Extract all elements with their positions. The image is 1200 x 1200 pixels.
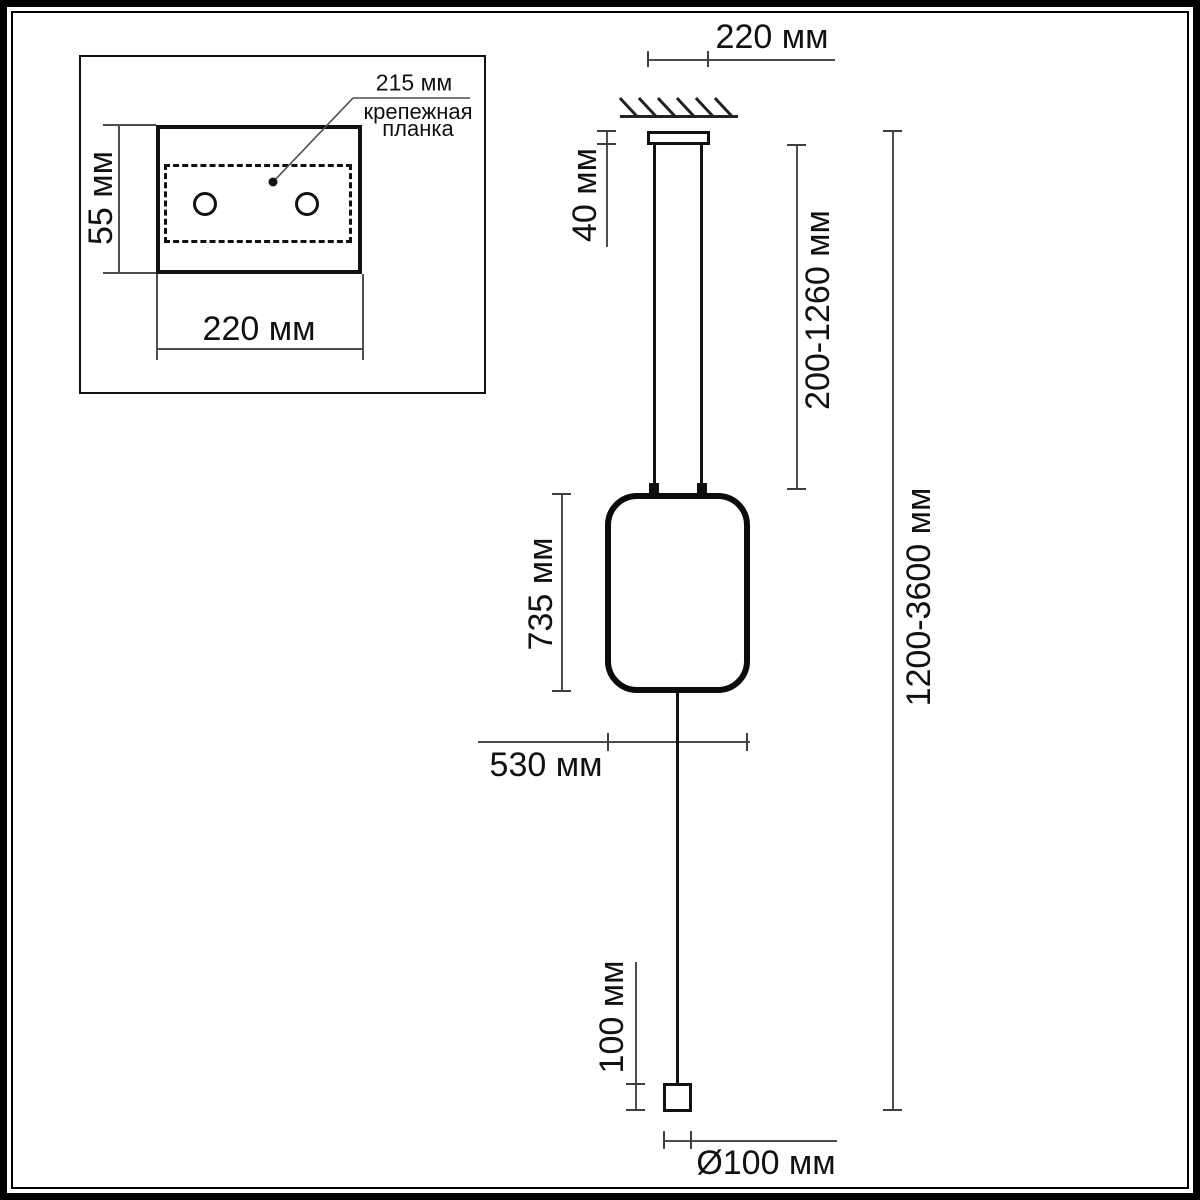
shade-height-tick-bottom <box>552 690 571 692</box>
suspension-range-tick-bottom <box>787 488 806 490</box>
total-height-label: 1200-3600 мм <box>902 488 936 707</box>
anchor-height-label: 100 мм <box>595 961 629 1074</box>
shade-height-dim-line <box>561 494 563 691</box>
shade-width-tick-left <box>607 733 609 751</box>
suspension-wire-left <box>653 145 656 486</box>
suspension-range-label: 200-1260 мм <box>801 210 835 410</box>
shade-width-tick-right <box>746 733 748 751</box>
ceiling-canopy <box>647 131 710 145</box>
anchor-height-tick-top <box>626 1083 645 1085</box>
lower-cable <box>676 693 679 1084</box>
canopy-width-tick-left <box>647 51 649 67</box>
plate-height-ext-top <box>103 124 156 126</box>
floor-anchor <box>663 1083 692 1112</box>
plate-height-ext-bottom <box>103 272 156 274</box>
anchor-diameter-tick-left <box>663 1131 665 1149</box>
mounting-plate-detail-box: 215 мм крепежная планка 55 мм 220 мм <box>79 55 486 394</box>
anchor-diameter-tick-right <box>690 1131 692 1149</box>
canopy-width-label: 220 мм <box>716 20 829 54</box>
shade-height-label: 735 мм <box>524 538 558 651</box>
total-height-tick-top <box>883 130 902 132</box>
suspension-range-dim-line <box>796 145 798 490</box>
shade-width-label: 530 мм <box>490 748 603 782</box>
bracket-length-label: 215 мм <box>376 75 452 92</box>
anchor-height-dim-line <box>635 962 637 1111</box>
canopy-width-dim-line <box>648 59 835 61</box>
anchor-diameter-label: Ø100 мм <box>696 1146 835 1180</box>
canopy-height-label: 40 мм <box>568 148 602 242</box>
canopy-width-tick-right <box>707 51 709 67</box>
plate-width-dim-line <box>156 348 364 350</box>
plate-height-label: 55 мм <box>84 151 118 245</box>
wire-connector-left <box>649 483 659 493</box>
callout-reference-dot <box>269 178 278 187</box>
total-height-dim-line <box>892 131 894 1111</box>
wire-connector-right <box>697 483 707 493</box>
lamp-shade-body <box>605 493 750 693</box>
suspension-range-tick-top <box>787 144 806 146</box>
shade-width-dim-line <box>478 741 750 743</box>
canopy-height-tick-top <box>597 130 616 132</box>
shade-height-tick-top <box>552 493 571 495</box>
anchor-height-tick-bottom <box>626 1109 645 1111</box>
canopy-height-tick-bottom <box>597 143 616 145</box>
bracket-name-label: крепежная планка <box>363 103 472 137</box>
plate-width-label: 220 мм <box>203 312 316 346</box>
suspension-wire-right <box>700 145 703 486</box>
total-height-tick-bottom <box>883 1109 902 1111</box>
canopy-height-dim-line <box>606 131 608 247</box>
dimension-drawing-page: 215 мм крепежная планка 55 мм 220 мм 220… <box>0 0 1200 1200</box>
